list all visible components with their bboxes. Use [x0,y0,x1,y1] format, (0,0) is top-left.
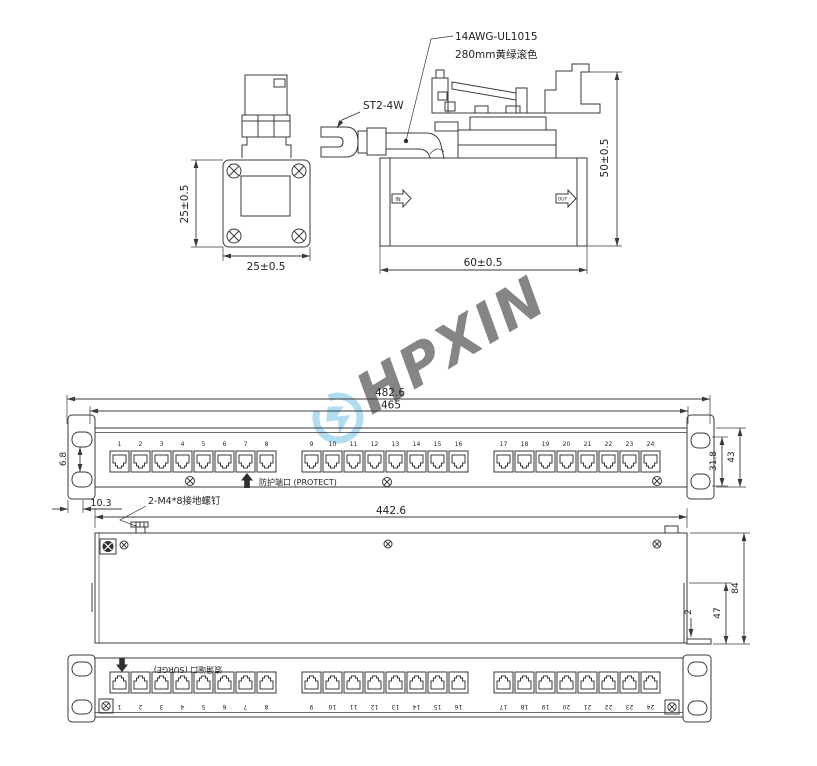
port-number: 23 [626,441,634,448]
overall-width-dim: 482.6 [375,387,405,399]
port-number: 6 [222,703,226,710]
protect-port-label: 防护端口 (PROTECT) [259,477,337,487]
port-number: 21 [584,441,592,448]
port-number: 13 [392,441,400,448]
port-number: 5 [201,703,205,710]
rj45-port: 7 [236,672,255,710]
hpxin-logo-icon [308,388,368,448]
port-number: 10 [329,703,337,710]
surge-module-front-view [223,75,310,247]
rj45-port: 2 [131,672,150,710]
rj45-port: 12 [365,672,384,710]
rj45-port: 14 [407,672,426,710]
surge-module-side-view: IN OUT [321,64,600,246]
rj45-port: 13 [386,441,405,472]
rj45-port: 21 [578,441,597,472]
patch-panel-top-view [92,522,711,644]
lightning-bolt-icon [320,399,356,437]
terminal-label: ST2-4W [363,100,404,112]
port-number: 2 [138,703,142,710]
module-side-width-dim: 60±0.5 [464,257,503,269]
top-width-dim: 442.6 [376,505,406,517]
port-number: 10 [329,441,337,448]
port-number: 4 [181,441,185,448]
rj45-port: 6 [215,672,234,710]
rj45-port: 9 [302,441,321,472]
rj45-port: 22 [599,672,618,710]
patch-panel-front-view: 123456789101112131415161718192021222324 … [68,415,714,499]
panel-body-top [95,533,687,643]
port-number: 20 [563,703,571,710]
port-number: 6 [223,441,227,448]
port-number: 7 [244,441,248,448]
port-number: 24 [647,703,655,710]
rj45-port: 19 [536,441,555,472]
ear-slot [688,701,707,715]
port-number: 4 [180,703,184,710]
fork-terminal [321,127,358,157]
ground-screw-note: 2-M4*8接地螺钉 [148,495,221,507]
rear-panel-ports: 123456789101112131415161718192021222324 [110,672,660,710]
port-number: 20 [563,441,571,448]
in-marking: IN [395,197,400,203]
drawing-canvas: HPXIN 25±0.5 25±0.5 [0,0,817,766]
side-view-dimensions: 60±0.5 50±0.5 [380,72,622,274]
rj45-port: 23 [620,441,639,472]
rj45-port: 5 [194,672,213,710]
panel-screw-icon [186,477,195,486]
rj45-port: 14 [407,441,426,472]
port-number: 18 [521,703,529,710]
port-number: 19 [542,441,550,448]
panel-screw-icon [120,541,128,549]
module-width-dim: 25±0.5 [247,261,286,273]
port-number: 11 [350,703,358,710]
rj45-port: 8 [257,672,276,710]
protect-arrow-up-icon [241,473,253,488]
port-number: 16 [455,703,463,710]
port-number: 3 [160,441,164,448]
rj45-port: 4 [173,672,192,710]
port-number: 9 [310,441,314,448]
ear-slot [72,472,92,487]
front-panel-ports: 123456789101112131415161718192021222324 [110,441,660,472]
cable-spec-line1: 14AWG-UL1015 [455,31,538,43]
din-rail-clip [432,64,600,158]
watermark-text: HPXIN [345,264,557,427]
module-terminal-block [245,75,287,115]
ground-terminal-icon [99,699,113,713]
port-number: 22 [605,441,613,448]
port-number: 19 [542,703,550,710]
depth-dim: 84 [731,582,741,594]
rj45-port: 7 [236,441,255,472]
rj45-port: 19 [536,672,555,710]
port-number: 14 [413,703,421,710]
ear-slot-dim: 6.8 [59,452,69,467]
port-number: 23 [626,703,634,710]
rj45-port: 9 [302,672,321,710]
panel-height-dim: 43 [727,451,737,462]
port-number: 21 [584,703,592,710]
surge-port-label: 浪涌端口 (SURGE) [154,665,223,675]
port-number: 13 [392,703,400,710]
technical-drawing-page: HPXIN 25±0.5 25±0.5 [0,0,817,766]
rj45-port: 11 [344,672,363,710]
panel-screw-icon [383,478,392,487]
port-number: 7 [243,703,247,710]
port-number: 22 [605,703,613,710]
rj45-port: 2 [131,441,150,472]
panel-screw-icon [653,540,661,548]
leader-dot [404,139,408,143]
rj45-port: 4 [173,441,192,472]
rj45-port: 15 [428,672,447,710]
rj45-port: 13 [386,672,405,710]
rj45-port: 16 [449,672,468,710]
rj45-port: 21 [578,672,597,710]
rj45-port: 6 [215,441,234,472]
rj45-port: 15 [428,441,447,472]
ground-terminal-icon [665,700,679,714]
port-number: 17 [500,703,508,710]
rj45-port: 8 [257,441,276,472]
ground-screw-profile [131,522,148,533]
surge-arrow-down-icon [116,658,128,672]
ground-terminal-icon [100,539,116,554]
port-number: 3 [159,703,163,710]
rj45-port: 17 [494,441,513,472]
panel-screw-icon [653,477,662,486]
ear-slot [72,662,92,676]
corner-screw-icon [227,229,241,243]
slot-spacing-dim: 31.8 [709,451,719,471]
module-side-height-dim: 50±0.5 [599,139,611,178]
ground-wire [386,133,444,158]
rj45-port: 1 [110,441,129,472]
rj45-port: 16 [449,441,468,472]
rj45-port: 12 [365,441,384,472]
rj45-port: 24 [641,441,660,472]
mounting-ear-left [68,415,95,499]
ear-offset-dim: 10.3 [90,498,111,509]
ear-slot [72,432,92,447]
port-number: 15 [434,703,442,710]
port-number: 17 [500,441,508,448]
corner-screw-icon [292,164,306,178]
port-number: 5 [202,441,206,448]
port-number: 8 [264,703,268,710]
rj45-port: 5 [194,441,213,472]
port-number: 8 [265,441,269,448]
rj45-port: 23 [620,672,639,710]
port-number: 11 [350,441,358,448]
port-number: 12 [371,703,379,710]
out-marking: OUT [558,197,568,203]
rj45-port: 17 [494,672,513,710]
rj45-port: 3 [152,672,171,710]
module-height-dim: 25±0.5 [179,185,191,224]
ear-slot [72,700,92,714]
panel-screw-icon [384,540,392,548]
rear-height-dim: 47 [713,607,723,618]
port-number: 15 [434,441,442,448]
port-number: 2 [139,441,143,448]
rear-flange [687,639,711,644]
side-view-annotations: 14AWG-UL1015 280mm黄绿滚色 ST2-4W [337,31,538,143]
rj45-port: 11 [344,441,363,472]
ear-slot [691,433,710,448]
port-number: 24 [647,441,655,448]
mounting-ear-right [683,655,711,722]
port-number: 1 [117,703,121,710]
rj45-port: 3 [152,441,171,472]
rj45-port: 18 [515,441,534,472]
port-number: 12 [371,441,379,448]
port-number: 18 [521,441,529,448]
port-number: 16 [455,441,463,448]
hpxin-watermark: HPXIN [301,264,558,454]
module-window [241,176,290,216]
rj45-port: 10 [323,672,342,710]
port-number: 1 [118,441,122,448]
ear-slot [691,474,710,489]
rj45-port: 20 [557,441,576,472]
rj45-port: 22 [599,441,618,472]
rj45-port: 10 [323,441,342,472]
port-number: 9 [309,703,313,710]
flange-thickness-dim: 2 [684,609,694,615]
port-number: 14 [413,441,421,448]
patch-panel-rear-view: 浪涌端口 (SURGE) 123456789101112131415161718… [68,655,711,722]
rj45-port: 18 [515,672,534,710]
ear-slot [688,662,707,676]
corner-screw-icon [227,164,241,178]
cable-spec-line2: 280mm黄绿滚色 [455,48,538,61]
top-view-dimensions: 442.6 84 47 2 [95,505,750,644]
panel-body-front [95,428,687,487]
rj45-port: 20 [557,672,576,710]
mounting-width-dim: 465 [381,400,401,412]
corner-screw-icon [292,229,306,243]
rj45-port: 24 [641,672,660,710]
